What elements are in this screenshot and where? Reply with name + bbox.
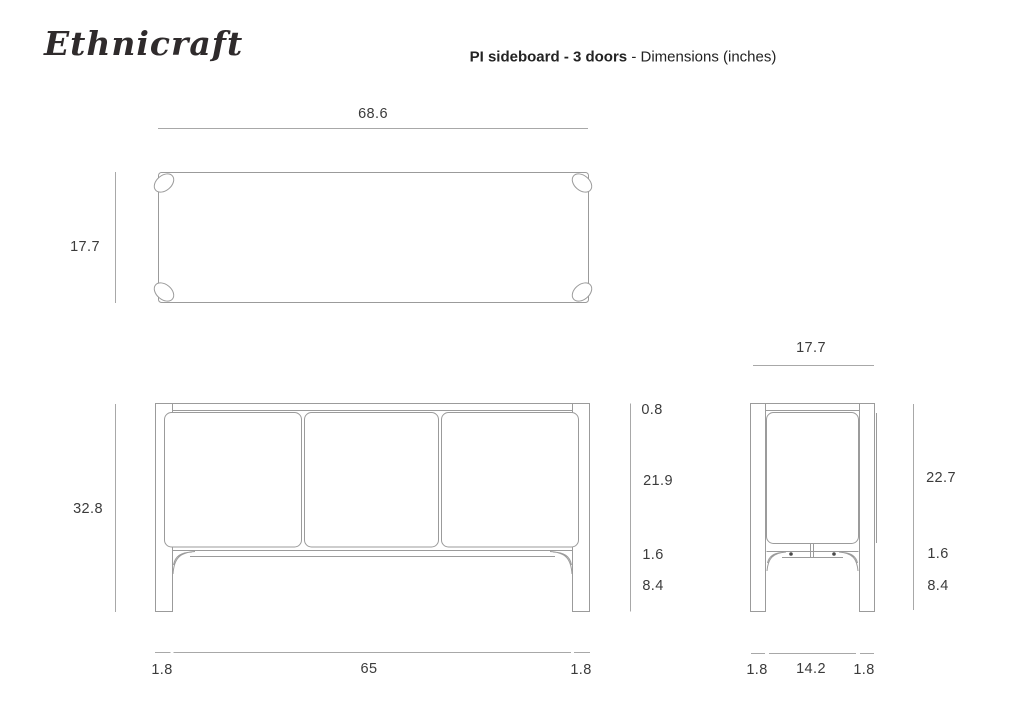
dimension-sheet: Ethnicraft PI sideboard - 3 doors - Dime… (0, 0, 1024, 726)
side-view-leg-front-label: 1.8 (746, 662, 767, 678)
side-view-rail-divider (811, 544, 814, 559)
brand-logo: Ethnicraft (44, 24, 243, 63)
side-view-rail-label: 1.6 (927, 546, 948, 562)
side-view-bracket-front (767, 552, 786, 571)
front-view-leg-right-label: 1.8 (570, 662, 591, 678)
side-view-back-leg (860, 404, 875, 612)
side-view-bracket-back (839, 552, 858, 571)
side-view-panel (767, 413, 859, 544)
side-view-front-leg (751, 404, 766, 612)
front-view-top-panel-label: 0.8 (641, 402, 662, 418)
front-view-door-right (442, 413, 579, 548)
side-view-drawing (751, 366, 914, 654)
front-view-inner-width-label: 65 (361, 661, 378, 677)
side-view-screw-right (832, 552, 836, 556)
top-view-drawing (116, 129, 596, 305)
front-view-bracket-right (550, 552, 572, 575)
page-title: PI sideboard - 3 doors - Dimensions (inc… (470, 49, 777, 66)
page-title-suffix: - Dimensions (inches) (627, 49, 776, 66)
front-view-door-label: 21.9 (643, 473, 673, 489)
front-view-drawing (116, 404, 631, 653)
front-view-bracket-left (173, 552, 195, 575)
page-title-product: PI sideboard - 3 doors (470, 49, 628, 66)
front-view-door-middle (305, 413, 439, 548)
front-view-door-left (165, 413, 302, 548)
side-view-depth-label: 17.7 (796, 340, 826, 356)
front-view-leg-left-label: 1.8 (151, 662, 172, 678)
technical-drawing (0, 0, 1024, 726)
side-view-clearance-label: 8.4 (927, 578, 948, 594)
side-view-screw-left (789, 552, 793, 556)
top-view-depth-label: 17.7 (70, 239, 100, 255)
front-view-height-label: 32.8 (73, 501, 103, 517)
side-view-leg-back-label: 1.8 (853, 662, 874, 678)
side-view-door-label: 22.7 (926, 470, 956, 486)
front-view-rail-label: 1.6 (642, 547, 663, 563)
top-view-outline (159, 173, 589, 303)
top-view-width-label: 68.6 (358, 106, 388, 122)
side-view-inner-depth-label: 14.2 (796, 661, 826, 677)
front-view-clearance-label: 8.4 (642, 578, 663, 594)
